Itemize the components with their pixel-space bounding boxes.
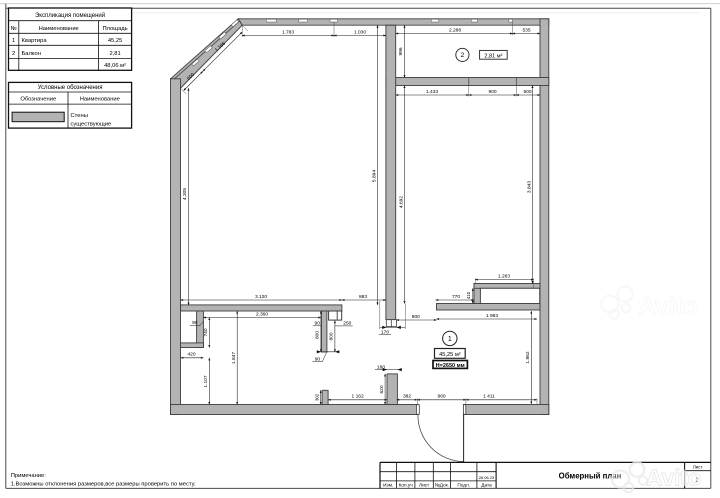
svg-text:1.263: 1.263: [498, 273, 510, 279]
svg-text:Лист: Лист: [419, 482, 430, 487]
svg-text:45,25 м²: 45,25 м²: [439, 352, 461, 358]
svg-text:1: 1: [12, 38, 15, 44]
svg-text:1.847: 1.847: [231, 352, 237, 364]
svg-text:48,06 м²: 48,06 м²: [104, 63, 126, 69]
svg-text:45,25: 45,25: [108, 38, 123, 44]
svg-text:существующие: существующие: [71, 122, 112, 128]
svg-text:740: 740: [203, 328, 209, 336]
svg-text:2,81: 2,81: [109, 51, 120, 57]
svg-text:Изм.: Изм.: [383, 482, 393, 487]
svg-text:3.120: 3.120: [255, 294, 267, 300]
svg-text:410: 410: [466, 291, 471, 299]
svg-text:2,81 м²: 2,81 м²: [484, 54, 502, 60]
svg-text:535: 535: [522, 28, 530, 34]
svg-text:Avito: Avito: [638, 293, 698, 320]
svg-text:1 411: 1 411: [483, 394, 495, 400]
svg-text:382: 382: [403, 394, 411, 400]
svg-text:1.862: 1.862: [525, 351, 531, 363]
svg-text:Avito: Avito: [646, 465, 701, 491]
svg-text:1.433: 1.433: [426, 89, 438, 95]
svg-text:Наименование: Наименование: [39, 26, 79, 32]
svg-text:4.692: 4.692: [398, 196, 404, 208]
svg-text:4.305: 4.305: [182, 188, 188, 200]
svg-text:№: №: [11, 26, 17, 32]
svg-text:3.843: 3.843: [526, 181, 532, 193]
svg-text:302: 302: [315, 393, 320, 401]
svg-text:996: 996: [398, 47, 404, 55]
svg-text:1.107: 1.107: [203, 375, 209, 387]
svg-text:770: 770: [452, 294, 460, 300]
svg-text:Подл.: Подл.: [457, 482, 470, 487]
svg-text:Наименование: Наименование: [80, 96, 120, 102]
svg-text:Кол.уч: Кол.уч: [399, 482, 414, 487]
svg-text:960: 960: [438, 394, 446, 400]
svg-text:2.288: 2.288: [449, 28, 461, 34]
svg-text:420: 420: [187, 352, 195, 358]
svg-text:900: 900: [488, 89, 496, 95]
svg-text:500: 500: [523, 89, 531, 95]
svg-text:Н=2650 мм: Н=2650 мм: [436, 363, 465, 369]
svg-text:Балкон: Балкон: [22, 51, 41, 57]
svg-text:800: 800: [329, 332, 335, 340]
svg-text:1 162: 1 162: [352, 394, 364, 400]
svg-text:№Док.: №Док.: [435, 482, 449, 487]
svg-text:1: 1: [448, 336, 452, 343]
svg-text:5.894: 5.894: [371, 170, 377, 182]
svg-text:Стены: Стены: [71, 113, 88, 119]
svg-text:Экспликация помещений: Экспликация помещений: [35, 12, 105, 19]
svg-text:Квартира: Квартира: [22, 38, 48, 44]
svg-text:1 983: 1 983: [486, 313, 498, 319]
svg-text:1.Возможны отклонения размеров: 1.Возможны отклонения размеров,все разме…: [11, 482, 196, 488]
svg-text:Условные обозначения: Условные обозначения: [38, 85, 103, 91]
svg-text:Дата: Дата: [481, 482, 492, 487]
svg-text:883: 883: [359, 294, 367, 300]
svg-text:Примечание:: Примечание:: [11, 473, 47, 479]
svg-text:2.360: 2.360: [256, 311, 268, 317]
svg-text:250: 250: [343, 320, 351, 326]
svg-text:26.06.23: 26.06.23: [479, 475, 495, 480]
svg-text:2: 2: [461, 52, 465, 59]
svg-text:Обозначение: Обозначение: [20, 96, 56, 102]
svg-text:Площадь: Площадь: [102, 26, 127, 32]
svg-text:2: 2: [12, 51, 15, 57]
svg-text:620: 620: [379, 385, 385, 393]
svg-text:800: 800: [315, 331, 321, 339]
svg-text:1.030: 1.030: [354, 30, 366, 36]
svg-text:1.783: 1.783: [282, 30, 294, 36]
svg-text:800: 800: [412, 314, 420, 320]
